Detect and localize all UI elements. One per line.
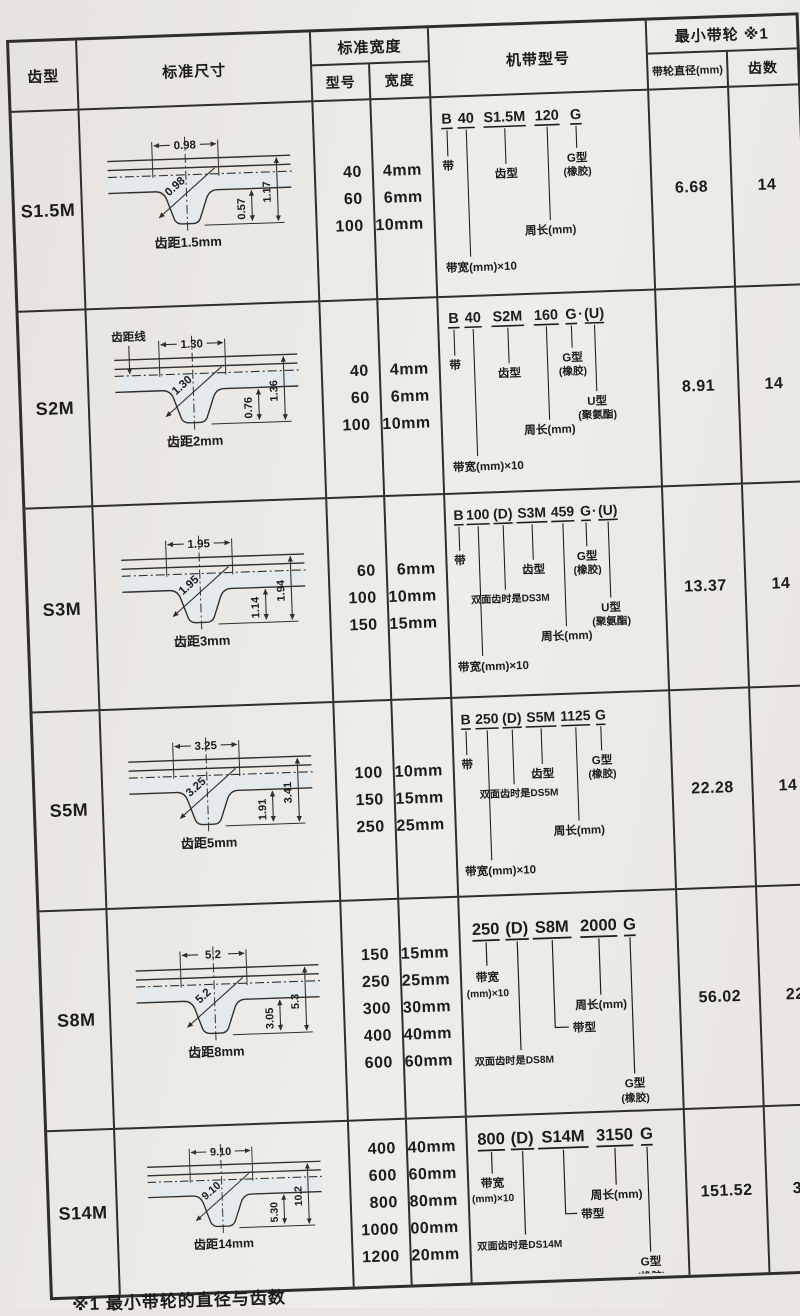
- header-model-label: 型号: [325, 72, 356, 93]
- pulley-diameter-s15m: 6.68: [649, 88, 736, 291]
- width-value: 80mm: [409, 1191, 458, 1211]
- model-value: 400: [367, 1140, 396, 1159]
- pitch-label: 齿距8mm: [188, 1043, 245, 1060]
- model-value: 600: [364, 1054, 393, 1073]
- designation-type-code: G: [623, 914, 637, 933]
- teeth-count-value: 22: [786, 986, 800, 1005]
- label-g-type: G型: [640, 1254, 662, 1269]
- pulley-diameter-value: 151.52: [700, 1181, 753, 1201]
- tooth-profile-diagram: 齿距线 1.30 1.30 0.76 1.36 齿距2mm: [88, 323, 323, 489]
- designation-belt-code: B: [448, 311, 459, 327]
- label-length: 周长(mm): [541, 628, 593, 644]
- belt-designation-cell-s5m: B 250 (D) S5M 1125 G 带 双面齿时是DS5M 齿型 周长(m…: [452, 691, 677, 897]
- header-min-pulley-label: 最小带轮 ※1: [674, 22, 769, 46]
- belt-designation-cell-s14m: 800 (D) S14M 3150 G 带宽 (mm)×10 周长(mm) 带型…: [467, 1110, 691, 1283]
- model-value: 400: [363, 1027, 392, 1046]
- header-belt-model-label: 机带型号: [506, 47, 571, 70]
- designation-type-code: G: [570, 107, 582, 123]
- profile-label: S1.5M: [20, 199, 75, 222]
- width-value: 6mm: [384, 189, 423, 208]
- pulley-diameter-value: 8.91: [682, 377, 716, 396]
- label-double-sided: 双面齿时是DS3M: [470, 591, 550, 607]
- belt-designation-diagram: 800 (D) S14M 3150 G 带宽 (mm)×10 周长(mm) 带型…: [469, 1120, 686, 1279]
- profile-name-s2m: S2M: [19, 310, 94, 509]
- dim-total-height: 3.41: [282, 781, 295, 803]
- dim-top-width: 1.30: [180, 338, 203, 351]
- designation-width-code: 40: [458, 111, 475, 128]
- label-width-line2: (mm)×10: [472, 1193, 515, 1205]
- belt-designation-diagram: B 100 (D) S3M 459 G · (U) 带 双面齿时是DS3M 齿型…: [448, 496, 665, 695]
- model-value: 800: [369, 1194, 398, 1213]
- header-width-label: 宽度: [384, 70, 415, 91]
- tooth-profile-diagram: 0.98 0.98 0.57 1.17 齿距1.5mm: [81, 124, 316, 290]
- designation-length-code: 2000: [580, 915, 617, 935]
- label-belt: 带: [461, 757, 473, 771]
- label-profile: 齿型: [495, 166, 519, 181]
- designation-dot: ·: [592, 502, 597, 518]
- dim-top-width: 1.95: [187, 538, 210, 551]
- pitch-label: 齿距3mm: [174, 633, 231, 650]
- width-value: 100mm: [407, 1218, 459, 1238]
- model-list-s14m: 400 600 800 1000 1200: [349, 1120, 413, 1287]
- model-value: 1200: [362, 1248, 400, 1267]
- profile-label: S3M: [42, 598, 81, 620]
- width-list-s2m: 4mm 6mm 10mm: [378, 298, 445, 497]
- label-g-type: G型: [562, 350, 583, 365]
- label-width: 带宽(mm)×10: [453, 458, 524, 474]
- belt-designation-diagram: B 250 (D) S5M 1125 G 带 双面齿时是DS5M 齿型 周长(m…: [456, 699, 673, 896]
- profile-label: S8M: [57, 1009, 96, 1031]
- label-profile: 齿型: [498, 365, 522, 380]
- profile-name-s3m: S3M: [25, 507, 100, 713]
- teeth-count-s15m: 14: [729, 85, 800, 287]
- header-pulley-dia-label: 带轮直径(mm): [652, 61, 723, 79]
- profile-name-s14m: S14M: [47, 1130, 121, 1297]
- teeth-count-s8m: 22: [757, 885, 800, 1107]
- label-width: 带宽(mm)×10: [446, 259, 517, 275]
- spec-table: 齿型 标准尺寸 标准宽度 机带型号 最小带轮 ※1 型号 宽度 带轮直径(mm)…: [6, 12, 800, 1300]
- width-value: 25mm: [402, 971, 451, 991]
- designation-belt-code: B: [460, 711, 471, 727]
- header-pulley-dia: 带轮直径(mm): [648, 52, 729, 91]
- label-profile: 齿型: [531, 766, 555, 781]
- tooth-diagram-cell-s2m: 齿距线 1.30 1.30 0.76 1.36 齿距2mm: [86, 302, 327, 507]
- width-list-s14m: 40mm 60mm 80mm 100mm 120mm: [407, 1118, 473, 1285]
- dim-total-height: 10.2: [293, 1185, 305, 1206]
- label-u-material: (聚氨酯): [592, 614, 631, 628]
- label-double-sided: 双面齿时是DS8M: [474, 1053, 555, 1069]
- designation-d-code: (D): [510, 1128, 534, 1148]
- header-width: 宽度: [370, 62, 431, 100]
- dim-top-width: 0.98: [173, 139, 196, 152]
- designation-belt-code: B: [453, 507, 464, 523]
- label-g-material: (橡胶): [588, 767, 617, 781]
- dim-tooth-height: 0.57: [236, 198, 249, 220]
- label-g-material: (橡胶): [637, 1269, 666, 1279]
- model-value: 250: [356, 818, 385, 837]
- designation-d-code: (D): [502, 709, 522, 726]
- model-list-s15m: 40 60 100: [313, 100, 378, 302]
- dim-tooth-height: 3.05: [264, 1007, 277, 1029]
- designation-width-code: 250: [472, 919, 500, 939]
- label-width-line2: (mm)×10: [467, 988, 510, 1000]
- header-belt-model: 机带型号: [429, 21, 649, 99]
- pulley-diameter-s5m: 22.28: [670, 688, 757, 890]
- label-g-type: G型: [591, 753, 612, 768]
- pulley-diameter-value: 13.37: [684, 577, 727, 596]
- dim-top-width: 3.25: [194, 740, 217, 753]
- teeth-count-s5m: 14: [750, 686, 800, 887]
- model-value: 100: [342, 416, 371, 435]
- label-length: 周长(mm): [525, 222, 577, 238]
- designation-length-code: 3150: [596, 1124, 633, 1144]
- teeth-count-value: 14: [757, 176, 776, 195]
- designation-d-code: (D): [505, 918, 529, 938]
- header-model: 型号: [312, 64, 371, 102]
- designation-type-code: G: [595, 706, 606, 722]
- width-value: 30mm: [402, 998, 451, 1018]
- pulley-diameter-value: 6.68: [675, 179, 709, 198]
- model-value: 100: [348, 589, 377, 608]
- width-value: 6mm: [397, 560, 436, 579]
- dim-total-height: 5.3: [289, 994, 302, 1010]
- pulley-diameter-s2m: 8.91: [656, 288, 743, 488]
- width-value: 15mm: [401, 944, 450, 964]
- width-list-s5m: 10mm 15mm 25mm: [392, 699, 459, 900]
- teeth-count-value: 14: [778, 776, 797, 795]
- width-list-s15m: 4mm 6mm 10mm: [371, 98, 438, 300]
- pulley-diameter-s14m: 151.52: [685, 1107, 771, 1275]
- width-value: 40mm: [407, 1137, 456, 1157]
- designation-width-code: 100: [466, 506, 490, 523]
- label-width-line1: 带宽: [475, 970, 499, 985]
- profile-label: S14M: [58, 1202, 108, 1225]
- header-tooth-profile: 齿型: [9, 41, 79, 113]
- designation-d-code: (D): [493, 505, 513, 522]
- tooth-diagram-cell-s14m: 9.10 9.10 5.30 10.2 齿距14mm: [115, 1122, 355, 1295]
- profile-name-s15m: S1.5M: [12, 110, 87, 312]
- header-teeth-label: 齿数: [748, 57, 779, 78]
- width-value: 4mm: [390, 360, 429, 379]
- label-double-sided: 双面齿时是DS5M: [479, 785, 559, 801]
- label-length: 周长(mm): [590, 1186, 642, 1202]
- designation-width-code: 250: [475, 710, 499, 727]
- label-length: 周长(mm): [553, 822, 605, 838]
- teeth-count-value: 14: [771, 575, 790, 594]
- model-value: 150: [361, 946, 390, 965]
- header-standard-width-label: 标准宽度: [337, 35, 402, 58]
- designation-profile-code: S8M: [534, 917, 569, 937]
- label-belt: 带: [449, 358, 461, 372]
- model-list-s2m: 40 60 100: [320, 300, 385, 499]
- diagram-lines: [135, 943, 325, 1045]
- designation-type-code: G: [640, 1124, 654, 1143]
- width-value: 120mm: [407, 1245, 460, 1265]
- dim-total-height: 1.94: [275, 579, 288, 602]
- pitch-label: 齿距2mm: [167, 432, 224, 449]
- belt-designation-diagram: B 40 S1.5M 120 G 带 齿型 G型 (橡胶) 周长(mm) 带宽(…: [435, 99, 651, 294]
- header-tooth-profile-label: 齿型: [27, 65, 60, 87]
- designation-u-code: (U): [584, 306, 605, 323]
- model-value: 40: [343, 164, 362, 183]
- designation-profile-code: S3M: [517, 504, 546, 521]
- scanned-table-rotated: 齿型 标准尺寸 标准宽度 机带型号 最小带轮 ※1 型号 宽度 带轮直径(mm)…: [6, 12, 800, 1300]
- width-value: 10mm: [382, 414, 431, 434]
- model-value: 100: [354, 764, 383, 783]
- tooth-profile-diagram: 1.95 1.95 1.14 1.94 齿距3mm: [95, 523, 330, 689]
- designation-profile-code: S5M: [526, 708, 555, 725]
- width-list-s3m: 6mm 10mm 15mm: [385, 495, 452, 701]
- model-value: 60: [357, 562, 376, 581]
- belt-designation-diagram: 250 (D) S8M 2000 G 带宽 (mm)×10 周长(mm) 带型 …: [462, 908, 681, 1115]
- label-profile: 齿型: [522, 562, 546, 577]
- model-value: 150: [355, 791, 384, 810]
- designation-profile-code: S14M: [541, 1126, 585, 1146]
- header-standard-dims-label: 标准尺寸: [162, 59, 227, 82]
- model-value: 1000: [361, 1221, 399, 1240]
- label-g-material: (橡胶): [563, 164, 592, 178]
- designation-length-code: 160: [534, 307, 559, 324]
- width-value: 10mm: [394, 762, 443, 782]
- dim-top-width: 5.2: [205, 949, 221, 962]
- designation-belt-code: B: [441, 111, 452, 127]
- belt-designation-diagram: B 40 S2M 160 G · (U) 带 齿型 G型 (橡胶) U型 (聚氨…: [442, 299, 658, 491]
- profile-name-s5m: S5M: [33, 711, 108, 912]
- belt-designation-cell-s15m: B 40 S1.5M 120 G 带 齿型 G型 (橡胶) 周长(mm) 带宽(…: [431, 91, 656, 298]
- width-value: 6mm: [391, 387, 430, 406]
- designation-width-code: 800: [477, 1129, 505, 1149]
- width-value: 10mm: [375, 216, 424, 236]
- label-width: 带宽(mm)×10: [458, 658, 529, 674]
- pitch-label: 齿距1.5mm: [154, 234, 222, 251]
- designation-leaders: [447, 126, 580, 258]
- tooth-diagram-cell-s5m: 3.25 3.25 1.91 3.41 齿距5mm: [100, 703, 341, 910]
- label-width: 带宽(mm)×10: [465, 862, 536, 878]
- tooth-profile-diagram: 3.25 3.25 1.91 3.41 齿距5mm: [102, 725, 337, 891]
- dim-top-width: 9.10: [210, 1145, 232, 1158]
- label-width-line1: 带宽: [481, 1176, 505, 1191]
- designation-length-code: 120: [534, 108, 559, 125]
- label-g-type: G型: [577, 548, 598, 563]
- model-value: 40: [350, 362, 369, 381]
- width-value: 4mm: [383, 162, 422, 181]
- label-belt: 带: [454, 553, 466, 567]
- pitch-line-label: 齿距线: [111, 329, 146, 344]
- label-u-material: (聚氨酯): [578, 407, 617, 421]
- header-teeth: 齿数: [728, 49, 798, 87]
- label-belt-type: 带型: [581, 1206, 605, 1221]
- width-value: 10mm: [388, 587, 437, 607]
- label-g-type: G型: [624, 1076, 646, 1091]
- tooth-profile-diagram: 9.10 9.10 5.30 10.2 齿距14mm: [122, 1131, 345, 1289]
- belt-designation-cell-s2m: B 40 S2M 160 G · (U) 带 齿型 G型 (橡胶) U型 (聚氨…: [438, 290, 663, 494]
- header-standard-width: 标准宽度: [311, 28, 430, 66]
- width-value: 60mm: [404, 1052, 453, 1072]
- label-g-material: (橡胶): [573, 563, 602, 577]
- dim-tooth-height: 1.14: [250, 596, 263, 619]
- label-length: 周长(mm): [524, 421, 576, 437]
- pitch-label: 齿距14mm: [193, 1235, 254, 1252]
- label-u-type: U型: [601, 600, 622, 615]
- dim-total-height: 1.36: [268, 379, 281, 401]
- designation-type-code: G: [580, 502, 591, 518]
- width-list-s8m: 15mm 25mm 30mm 40mm 60mm: [399, 898, 467, 1120]
- teeth-count-value: 14: [764, 375, 783, 394]
- designation-length-code: 1125: [560, 707, 591, 724]
- tooth-profile-diagram: 5.2 5.2 3.05 5.3 齿距8mm: [110, 934, 345, 1100]
- designation-profile-code: S1.5M: [483, 109, 525, 126]
- model-list-s8m: 150 250 300 400 600: [341, 900, 407, 1122]
- pulley-diameter-s8m: 56.02: [677, 887, 765, 1110]
- pulley-diameter-s3m: 13.37: [663, 485, 750, 692]
- designation-length-code: 459: [551, 503, 575, 520]
- tooth-diagram-cell-s8m: 5.2 5.2 3.05 5.3 齿距8mm: [107, 902, 349, 1130]
- profile-label: S5M: [49, 800, 88, 822]
- teeth-count-s3m: 14: [743, 482, 800, 688]
- label-belt-type: 带型: [573, 1020, 597, 1035]
- teeth-count-s14m: 34: [765, 1105, 800, 1272]
- belt-designation-cell-s3m: B 100 (D) S3M 459 G · (U) 带 双面齿时是DS3M 齿型…: [445, 487, 670, 698]
- model-value: 60: [351, 389, 370, 408]
- tooth-diagram-cell-s15m: 0.98 0.98 0.57 1.17 齿距1.5mm: [80, 102, 321, 310]
- designation-dot: ·: [578, 306, 583, 322]
- label-belt: 带: [442, 159, 454, 173]
- designation-profile-code: S2M: [492, 309, 522, 326]
- model-value: 250: [362, 973, 391, 992]
- dim-tooth-height: 0.76: [243, 396, 256, 418]
- profile-name-s8m: S8M: [39, 910, 115, 1132]
- model-list-s5m: 100 150 250: [334, 701, 399, 902]
- model-value: 600: [368, 1167, 397, 1186]
- model-value: 150: [349, 616, 378, 635]
- width-value: 60mm: [408, 1164, 457, 1184]
- width-value: 40mm: [403, 1025, 452, 1045]
- model-value: 60: [344, 191, 363, 210]
- header-standard-dims: 标准尺寸: [77, 32, 313, 110]
- tooth-diagram-cell-s3m: 1.95 1.95 1.14 1.94 齿距3mm: [93, 499, 334, 711]
- width-value: 25mm: [396, 816, 445, 836]
- label-g-material: (橡胶): [621, 1091, 650, 1105]
- width-value: 15mm: [389, 614, 438, 634]
- dim-tooth-height: 5.30: [269, 1201, 281, 1222]
- pulley-diameter-value: 22.28: [691, 779, 734, 798]
- profile-label: S2M: [35, 398, 74, 420]
- belt-designation-cell-s8m: 250 (D) S8M 2000 G 带宽 (mm)×10 周长(mm) 带型 …: [459, 890, 685, 1117]
- model-value: 300: [363, 1000, 392, 1019]
- belt-spec-sheet: 齿型 标准尺寸 标准宽度 机带型号 最小带轮 ※1 型号 宽度 带轮直径(mm)…: [0, 0, 800, 1308]
- label-u-type: U型: [587, 393, 608, 408]
- model-value: 100: [335, 218, 364, 237]
- designation-width-code: 40: [465, 310, 482, 327]
- pitch-label: 齿距5mm: [181, 834, 238, 851]
- label-g-type: G型: [567, 150, 588, 165]
- header-min-pulley: 最小带轮 ※1: [647, 15, 797, 54]
- model-list-s3m: 60 100 150: [327, 497, 392, 703]
- width-value: 15mm: [395, 789, 444, 809]
- designation-u-code: (U): [598, 501, 618, 518]
- pulley-diameter-value: 56.02: [698, 988, 741, 1007]
- teeth-count-value: 34: [792, 1179, 800, 1198]
- teeth-count-s2m: 14: [736, 285, 800, 484]
- designation-type-code: G: [565, 307, 577, 323]
- label-g-material: (橡胶): [559, 364, 588, 378]
- label-double-sided: 双面齿时是DS14M: [476, 1237, 562, 1253]
- label-length: 周长(mm): [575, 996, 627, 1012]
- dim-tooth-height: 1.91: [257, 798, 270, 820]
- dim-total-height: 1.17: [261, 181, 274, 203]
